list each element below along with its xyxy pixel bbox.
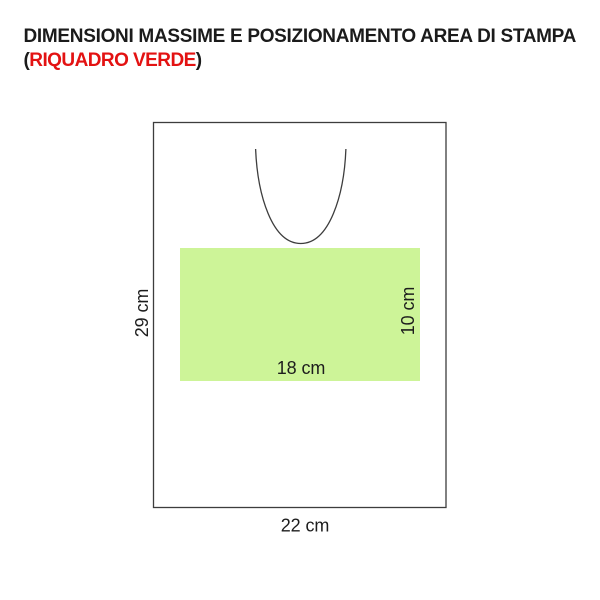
svg-text:22 cm: 22 cm [281,516,330,536]
svg-text:18 cm: 18 cm [277,358,326,378]
svg-text:29 cm: 29 cm [132,289,152,338]
svg-text:10 cm: 10 cm [398,287,418,336]
